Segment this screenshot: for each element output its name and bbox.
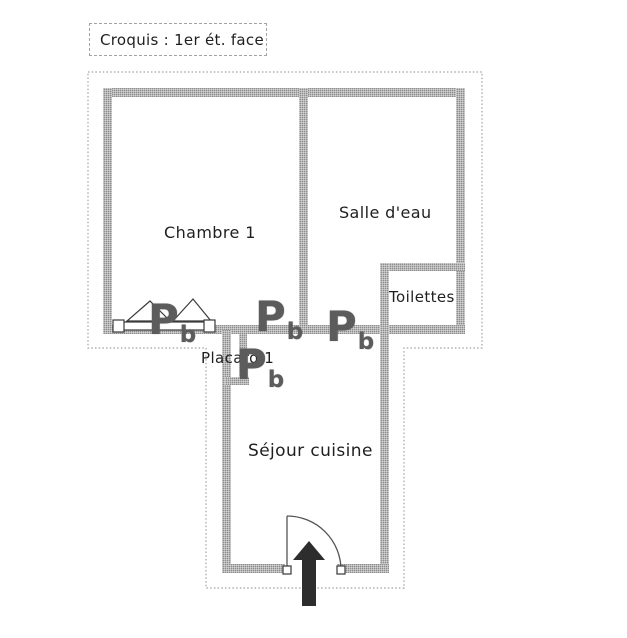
door-marker-placard: P b [236,344,284,386]
door-marker-sub: b [358,331,374,354]
window-cap-left [113,320,124,332]
floor-plan-sketch: Croquis : 1er ét. face Chamb [0,0,627,638]
door-marker-main: P [148,299,179,341]
room-label-sejour-cuisine: Séjour cuisine [248,441,373,461]
plan-linework [0,0,627,638]
door-marker-main: P [326,306,357,348]
door-marker-main: P [236,344,267,386]
room-label-chambre-1: Chambre 1 [164,223,256,242]
door-marker-main: P [255,296,286,338]
window-cap-right [204,320,215,332]
entrance-arrow-icon [293,541,325,606]
door-marker-sub: b [287,321,303,344]
room-label-salle-deau: Salle d'eau [339,203,432,222]
door-marker-chambre: P b [255,296,303,338]
room-label-toilettes: Toilettes [389,288,455,306]
door-jamb-left [283,566,291,574]
door-jamb-right [337,566,345,574]
door-marker-window-chambre: P b [148,299,196,341]
door-marker-sub: b [180,324,196,347]
door-marker-sub: b [268,369,284,392]
door-marker-salle-deau: P b [326,306,374,348]
